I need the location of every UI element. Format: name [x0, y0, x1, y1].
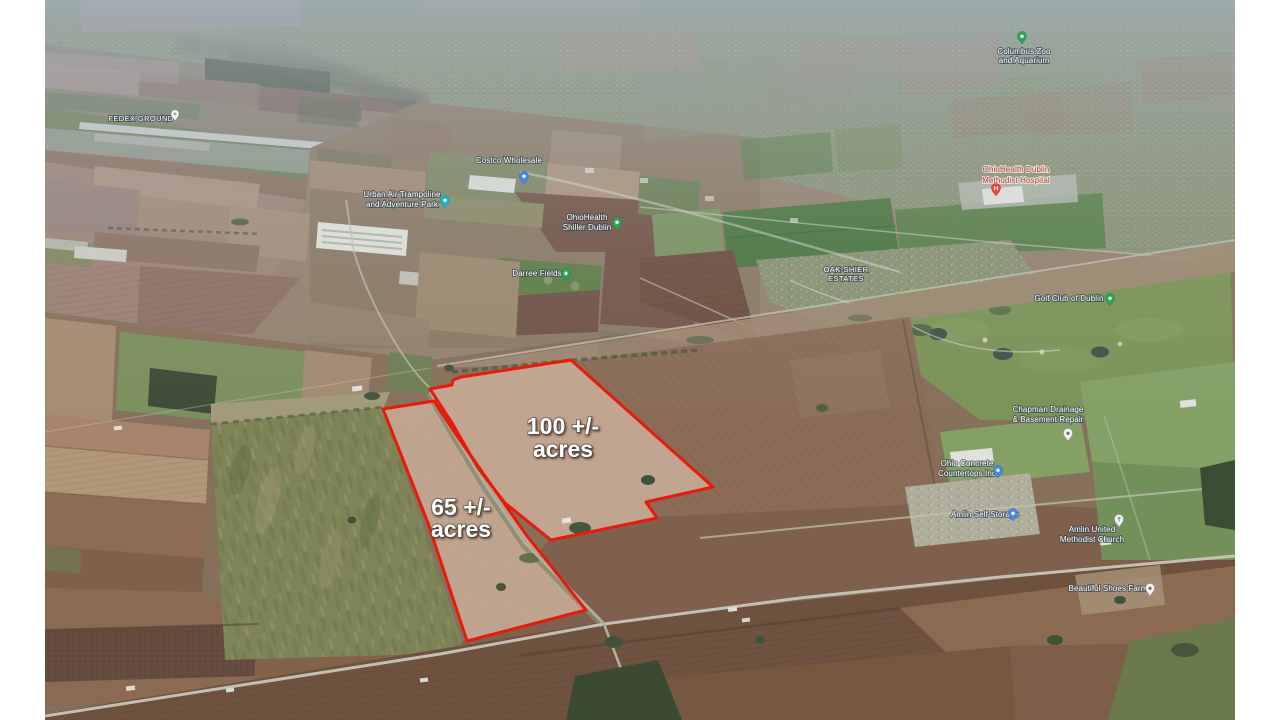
svg-text:Columbus Zoo: Columbus Zoo — [997, 47, 1051, 56]
svg-text:OAK-SHIER: OAK-SHIER — [824, 265, 869, 274]
svg-text:Methodist Church: Methodist Church — [1060, 535, 1124, 544]
svg-text:FEDEX GROUND: FEDEX GROUND — [108, 114, 173, 123]
svg-text:Golf Club of Dublin: Golf Club of Dublin — [1034, 294, 1103, 303]
svg-text:Methodist Hospital: Methodist Hospital — [982, 176, 1050, 185]
svg-text:and Adventure Park: and Adventure Park — [366, 200, 439, 209]
svg-text:Amlin United: Amlin United — [1069, 525, 1116, 534]
svg-text:ESTATES: ESTATES — [828, 274, 864, 283]
svg-text:Urban Air Trampoline: Urban Air Trampoline — [363, 190, 441, 199]
svg-text:& Basement Repair: & Basement Repair — [1012, 415, 1083, 424]
svg-text:H: H — [994, 186, 999, 193]
svg-text:Chapman Drainage: Chapman Drainage — [1013, 405, 1084, 414]
svg-text:✝: ✝ — [1116, 516, 1122, 524]
svg-text:Ohio Concrete: Ohio Concrete — [941, 459, 994, 468]
svg-text:Countertops Inc: Countertops Inc — [938, 469, 996, 478]
svg-text:acres: acres — [533, 436, 593, 462]
svg-text:OhioHealth Dublin: OhioHealth Dublin — [983, 165, 1050, 174]
svg-text:Beautiful Shoes Farm: Beautiful Shoes Farm — [1069, 584, 1148, 593]
svg-text:acres: acres — [431, 516, 491, 542]
svg-text:OhioHealth: OhioHealth — [566, 213, 607, 222]
svg-text:Costco Wholesale: Costco Wholesale — [476, 156, 543, 165]
svg-text:Shiller Dublin: Shiller Dublin — [563, 223, 612, 232]
svg-text:and Aquarium: and Aquarium — [999, 56, 1050, 65]
svg-text:Darree Fields: Darree Fields — [512, 269, 561, 278]
